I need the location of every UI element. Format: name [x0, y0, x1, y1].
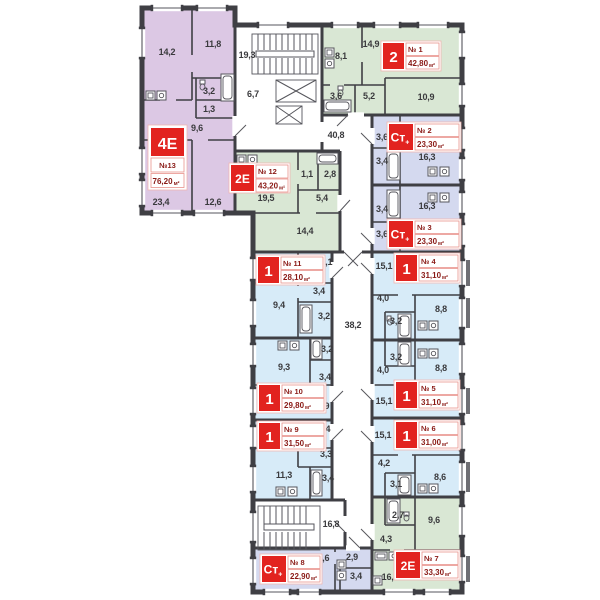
- room-area: 9,6: [428, 515, 440, 525]
- apartment-label-7[interactable]: 2Е № 7 33,30м²: [394, 550, 460, 580]
- room-area: 3,6: [330, 91, 342, 101]
- room-area: 5,2: [363, 91, 375, 101]
- room-area: 3,2: [321, 344, 333, 354]
- balcony-slab: [466, 260, 470, 286]
- room-area: 6,7: [247, 89, 259, 99]
- floor-plan: 14,2 11,8 3,2 1,3 9,6 23,4 12,6 19,3 6,7…: [0, 0, 600, 600]
- room-area: 3,2: [203, 86, 215, 96]
- room-area: 3,4: [313, 286, 325, 296]
- stove-icon: [428, 167, 437, 176]
- stair-block-region: [235, 25, 322, 151]
- room-area: 3,4: [350, 571, 362, 581]
- apartment-number: № 4: [421, 257, 436, 266]
- balcony-slab: [466, 556, 470, 582]
- window: [373, 22, 402, 28]
- room-area: 5,4: [316, 193, 328, 203]
- window: [250, 557, 256, 586]
- room-area: 9,4: [273, 300, 285, 310]
- window: [459, 83, 465, 108]
- room-area: 11,3: [276, 470, 292, 480]
- sink-icon: [325, 59, 334, 68]
- apartment-label-11[interactable]: 1 № 11 28,10м²: [256, 255, 325, 285]
- sink-icon: [290, 341, 299, 350]
- apartment-type: 2Е: [401, 559, 416, 573]
- sink-icon: [440, 167, 449, 176]
- window: [257, 22, 290, 28]
- room-area: 4,0: [377, 293, 389, 303]
- window: [383, 589, 416, 595]
- window: [250, 511, 256, 544]
- apartment-type: 1: [265, 429, 273, 446]
- apartment-number: № 3: [417, 223, 432, 232]
- window: [196, 5, 229, 11]
- apartment-number: № 2: [417, 126, 432, 135]
- stove-icon: [278, 341, 287, 350]
- room-area: 3,4: [376, 204, 388, 214]
- window: [297, 589, 322, 595]
- room-area: 10,9: [418, 92, 435, 102]
- sink-icon: [337, 571, 346, 580]
- apartment-label-1[interactable]: 2 № 1 42,80м²: [381, 41, 441, 71]
- room-area: 19,3: [239, 50, 256, 60]
- room-area: 8,1: [335, 51, 347, 61]
- apartment-regions: [142, 8, 462, 592]
- room-area: 2,8: [324, 169, 336, 179]
- stairs-bottom-icon: [258, 506, 320, 550]
- apartment-label-12[interactable]: 2Е № 12 43,20м²: [229, 163, 290, 193]
- window: [250, 257, 256, 282]
- balcony-slab: [466, 462, 470, 492]
- window: [331, 22, 360, 28]
- bathtub-icon: [221, 74, 234, 101]
- bathtub-icon: [387, 190, 400, 218]
- room-area: 3,6: [376, 132, 388, 142]
- apartment-number: № 11: [283, 259, 301, 268]
- apartment-label-8[interactable]: Ст+ № 8 22,90м²: [260, 554, 322, 584]
- stove-icon: [375, 552, 387, 560]
- stove-icon: [325, 48, 334, 57]
- room-area: 38,2: [345, 320, 362, 330]
- window: [250, 343, 256, 368]
- window: [263, 589, 292, 595]
- sink-icon: [429, 321, 438, 330]
- apartment-number: № 1: [408, 45, 423, 54]
- window: [151, 5, 184, 11]
- room-area: 12,6: [205, 197, 222, 207]
- apartment-type: 4Е: [158, 136, 178, 153]
- apartment-number: № 6: [421, 424, 436, 433]
- apartment-number: № 8: [290, 558, 305, 567]
- room-area: 3,2: [318, 311, 330, 321]
- room-area: 1,1: [301, 169, 313, 179]
- stove-icon: [373, 576, 382, 585]
- stove-icon: [276, 487, 285, 496]
- room-area: 3,6: [376, 229, 388, 239]
- stove-icon: [418, 349, 427, 358]
- stove-icon: [337, 560, 346, 569]
- apartment-label-5[interactable]: 1 № 5 31,10м²: [394, 380, 460, 410]
- window: [250, 465, 256, 494]
- room-area: 3,4: [376, 156, 388, 166]
- room-area: 15,1: [376, 261, 393, 271]
- sink-icon: [440, 193, 449, 202]
- room-area: 4,3: [380, 534, 392, 544]
- apartment-label-2[interactable]: Ст+ № 2 23,30м²: [387, 122, 461, 152]
- bathtub-icon: [311, 470, 322, 496]
- room-area: 40,8: [328, 130, 345, 140]
- balconies: [466, 260, 470, 582]
- room-area: 4,2: [378, 458, 390, 468]
- sink-icon: [288, 487, 297, 496]
- window: [423, 589, 452, 595]
- apartment-type: 2Е: [235, 172, 250, 186]
- window: [139, 27, 145, 60]
- apartment-label-4[interactable]: 1 № 4 31,10м²: [394, 253, 460, 283]
- room-area: 3,1: [390, 479, 402, 489]
- room-area: 8,6: [434, 472, 446, 482]
- apartment-type: 1: [265, 391, 273, 408]
- window: [151, 210, 184, 216]
- apartment-label-9[interactable]: 1 № 9 31,50м²: [257, 421, 326, 451]
- bathtub-icon: [324, 100, 351, 112]
- room-area: 2,7: [392, 510, 404, 520]
- window: [139, 147, 145, 176]
- bathtub-icon: [300, 305, 312, 333]
- room-area: 9,3: [278, 362, 290, 372]
- room-area: 15,1: [375, 430, 392, 440]
- apartment-number: №13: [159, 161, 176, 170]
- room-area: 8,8: [435, 363, 447, 373]
- apartment-type: 1: [264, 263, 272, 280]
- window: [417, 22, 450, 28]
- room-area: 3,2: [390, 316, 402, 326]
- window: [459, 297, 465, 330]
- room-area: 3,4: [319, 372, 331, 382]
- window: [459, 157, 465, 182]
- apartment-type: 1: [402, 388, 410, 405]
- apartment-type: 1: [402, 428, 410, 445]
- apartment-label-6[interactable]: 1 № 6 31,00м²: [394, 420, 460, 450]
- apartment-number: № 7: [424, 554, 439, 563]
- window: [250, 387, 256, 416]
- room-area: 14,9: [363, 39, 380, 49]
- window: [139, 179, 145, 208]
- sink-icon: [429, 484, 438, 493]
- stove-icon: [146, 91, 155, 100]
- stove-icon: [418, 484, 427, 493]
- room-area: 3,4: [322, 473, 334, 483]
- balcony-slab: [466, 388, 470, 414]
- room-area: 16,8: [323, 519, 340, 529]
- apartment-label-13[interactable]: 4Е №13 76,20м²: [148, 125, 187, 190]
- sink-icon: [429, 349, 438, 358]
- room-area: 4,0: [377, 365, 389, 375]
- window: [459, 191, 465, 216]
- room-area: 15,1: [376, 396, 393, 406]
- room-area: 1,3: [203, 104, 215, 114]
- apartment-number: № 5: [421, 384, 436, 393]
- bathtub-icon: [387, 152, 400, 180]
- room-area: 16,3: [419, 152, 436, 162]
- room-area: 19,5: [258, 193, 275, 203]
- window: [193, 210, 226, 216]
- bathtub-icon: [317, 153, 338, 164]
- room-area: 3,2: [390, 352, 402, 362]
- window: [459, 343, 465, 376]
- room-area: 11,8: [205, 39, 221, 49]
- window: [459, 31, 465, 60]
- apartment-number: № 10: [284, 387, 303, 396]
- window: [459, 461, 465, 494]
- room-area: 9,6: [191, 123, 203, 133]
- apartment-number: № 9: [284, 425, 299, 434]
- apartment-label-3[interactable]: Ст+ № 3 23,30м²: [387, 219, 461, 249]
- stove-icon: [418, 321, 427, 330]
- window: [250, 299, 256, 328]
- apartment-type: 2: [389, 49, 397, 66]
- apartment-type: 1: [402, 261, 410, 278]
- balcony-slab: [466, 298, 470, 328]
- room-area: 8,8: [435, 304, 447, 314]
- sink-icon: [157, 91, 166, 100]
- room-area: 16,3: [419, 201, 436, 211]
- room-area: 23,4: [153, 197, 170, 207]
- window: [250, 425, 256, 450]
- apartment-label-10[interactable]: 1 № 10 29,80м²: [257, 383, 326, 413]
- room-area: 2,9: [346, 552, 358, 562]
- room-area: 14,4: [297, 226, 314, 236]
- room-area: 14,2: [159, 47, 176, 57]
- window: [459, 505, 465, 538]
- apartment-number: № 12: [258, 167, 277, 176]
